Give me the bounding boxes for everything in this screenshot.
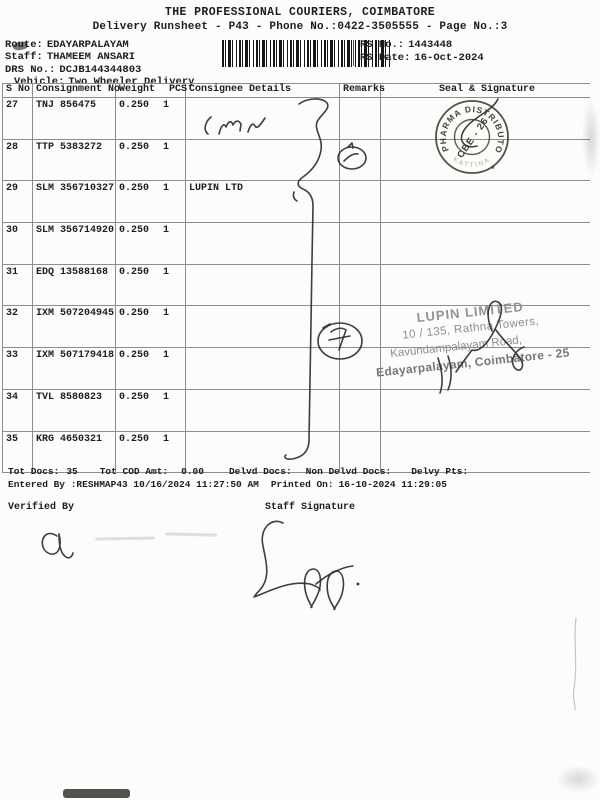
header-consignment: Consignment No bbox=[33, 84, 116, 97]
cell-seal bbox=[381, 390, 590, 431]
entered-by-value: RESHMAP43 10/16/2024 11:27:50 AM bbox=[76, 479, 258, 490]
pcs-value: 1 bbox=[163, 100, 169, 111]
tot-cod-label: Tot COD Amt: bbox=[100, 466, 168, 477]
page-title: THE PROFESSIONAL COURIERS, COIMBATORE bbox=[0, 6, 600, 19]
cell-seal bbox=[381, 223, 590, 264]
cell-sno: 28 bbox=[2, 140, 33, 181]
cell-consignee bbox=[186, 98, 340, 139]
scan-fleck bbox=[165, 532, 217, 536]
drs-line: DRS No.:DCJB144344803 bbox=[5, 64, 141, 76]
totals-row: Tot Docs: 35 Tot COD Amt: 0.00 Delvd Doc… bbox=[8, 466, 468, 477]
header-remarks: Remarks bbox=[340, 84, 381, 97]
table-row: 30SLM 3567149200.2501 bbox=[2, 223, 590, 265]
pcs-value: 1 bbox=[163, 267, 169, 278]
cell-weight-pcs: 0.2501 bbox=[116, 306, 186, 347]
cell-consignment: EDQ 13588168 bbox=[33, 265, 116, 306]
cell-weight-pcs: 0.2501 bbox=[116, 98, 186, 139]
printed-on-value: 16-10-2024 11:29:05 bbox=[339, 479, 447, 490]
weight-value: 0.250 bbox=[119, 308, 149, 319]
page-subtitle: Delivery Runsheet - P43 - Phone No.:0422… bbox=[0, 21, 600, 33]
handwriting-staff-signature bbox=[254, 521, 359, 609]
weight-value: 0.250 bbox=[119, 392, 149, 403]
cell-weight-pcs: 0.2501 bbox=[116, 265, 186, 306]
weight-value: 0.250 bbox=[119, 267, 149, 278]
cell-sno: 27 bbox=[2, 98, 33, 139]
rs-block: RS No.:1443448 RS Date:16-Oct-2024 bbox=[360, 39, 484, 65]
table-row: 28TTP 53832720.2501 bbox=[2, 140, 590, 182]
pcs-value: 1 bbox=[163, 434, 169, 445]
header-weight: Weight bbox=[119, 84, 155, 95]
weight-value: 0.250 bbox=[119, 350, 149, 361]
staff-label: Staff: bbox=[5, 51, 43, 63]
route-value: EDAYARPALAYAM bbox=[47, 39, 129, 51]
rs-date-value: 16-Oct-2024 bbox=[414, 52, 483, 64]
cell-consignee: LUPIN LTD bbox=[186, 181, 340, 222]
weight-value: 0.250 bbox=[119, 142, 149, 153]
table-row: 29SLM 3567103270.2501LUPIN LTD bbox=[2, 181, 590, 223]
cell-remarks bbox=[340, 181, 381, 222]
table-header-row: S No Consignment No WeightPCS Consignee … bbox=[2, 83, 590, 98]
tot-docs-label: Tot Docs: bbox=[8, 466, 59, 477]
cell-weight-pcs: 0.2501 bbox=[116, 390, 186, 431]
cell-remarks bbox=[340, 140, 381, 181]
header-sno: S No bbox=[2, 84, 33, 97]
consignment-table: S No Consignment No WeightPCS Consignee … bbox=[2, 83, 590, 473]
header-seal: Seal & Signature bbox=[381, 84, 590, 97]
table-row: 27TNJ 8564750.2501 bbox=[2, 98, 590, 140]
printed-on-label: Printed On: bbox=[271, 479, 334, 490]
cell-weight-pcs: 0.2501 bbox=[116, 140, 186, 181]
cell-seal bbox=[381, 140, 590, 181]
cell-consignment: TNJ 856475 bbox=[33, 98, 116, 139]
pcs-value: 1 bbox=[163, 225, 169, 236]
edge-smudge bbox=[556, 765, 600, 793]
pcs-value: 1 bbox=[163, 142, 169, 153]
non-delvd-docs-label: Non Delvd Docs: bbox=[306, 466, 392, 477]
cell-sno: 29 bbox=[2, 181, 33, 222]
cell-consignee bbox=[186, 223, 340, 264]
cell-remarks bbox=[340, 223, 381, 264]
cell-sno: 31 bbox=[2, 265, 33, 306]
cell-consignment: SLM 356710327 bbox=[33, 181, 116, 222]
edge-smudge bbox=[582, 98, 600, 178]
cell-consignee bbox=[186, 140, 340, 181]
rs-no-value: 1443448 bbox=[408, 39, 452, 51]
pcs-value: 1 bbox=[163, 350, 169, 361]
rs-divider-line bbox=[353, 40, 354, 66]
weight-value: 0.250 bbox=[119, 183, 149, 194]
delvy-pts-label: Delvy Pts: bbox=[411, 466, 468, 477]
scan-fleck bbox=[95, 536, 155, 540]
weight-value: 0.250 bbox=[119, 434, 149, 445]
drs-label: DRS No.: bbox=[5, 64, 55, 76]
cell-consignment: TTP 5383272 bbox=[33, 140, 116, 181]
cell-weight-pcs: 0.2501 bbox=[116, 348, 186, 389]
cell-seal bbox=[381, 181, 590, 222]
staff-value: THAMEEM ANSARI bbox=[47, 51, 135, 63]
table-row: 34TVL 85808230.2501 bbox=[2, 390, 590, 432]
entered-row: Entered By : RESHMAP43 10/16/2024 11:27:… bbox=[8, 479, 447, 490]
rs-date-label: RS Date: bbox=[360, 52, 410, 64]
header-consignee: Consignee Details bbox=[186, 84, 340, 97]
cell-consignee bbox=[186, 390, 340, 431]
rs-no-label: RS No.: bbox=[360, 39, 404, 51]
cell-consignee bbox=[186, 348, 340, 389]
cell-sno: 34 bbox=[2, 390, 33, 431]
pcs-value: 1 bbox=[163, 183, 169, 194]
cell-weight-pcs: 0.2501 bbox=[116, 223, 186, 264]
runsheet-page: THE PROFESSIONAL COURIERS, COIMBATORE De… bbox=[0, 0, 600, 800]
drs-value: DCJB144344803 bbox=[59, 64, 141, 76]
scan-artifact-bar bbox=[63, 789, 130, 798]
delvd-docs-label: Delvd Docs: bbox=[229, 466, 292, 477]
entered-by-label: Entered By : bbox=[8, 479, 76, 490]
cell-consignee bbox=[186, 306, 340, 347]
cell-consignment: IXM 507179418 bbox=[33, 348, 116, 389]
cell-consignment: SLM 356714920 bbox=[33, 223, 116, 264]
verified-by-label: Verified By bbox=[8, 502, 74, 513]
weight-value: 0.250 bbox=[119, 100, 149, 111]
cell-sno: 33 bbox=[2, 348, 33, 389]
tot-docs-value: 35 bbox=[66, 466, 77, 477]
cell-sno: 32 bbox=[2, 306, 33, 347]
pcs-value: 1 bbox=[163, 392, 169, 403]
cell-sno: 30 bbox=[2, 223, 33, 264]
staff-signature-label: Staff Signature bbox=[265, 502, 355, 513]
header-weight-pcs: WeightPCS bbox=[116, 84, 186, 97]
cell-remarks bbox=[340, 98, 381, 139]
cell-consignee bbox=[186, 265, 340, 306]
cell-weight-pcs: 0.2501 bbox=[116, 181, 186, 222]
table-body: 27TNJ 8564750.250128TTP 53832720.250129S… bbox=[2, 98, 590, 473]
scan-line-artifact bbox=[573, 618, 576, 710]
cell-remarks bbox=[340, 390, 381, 431]
header-pcs: PCS bbox=[169, 84, 187, 95]
cell-consignment: TVL 8580823 bbox=[33, 390, 116, 431]
cell-consignment: IXM 507204945 bbox=[33, 306, 116, 347]
cell-seal bbox=[381, 98, 590, 139]
staff-line: Staff:THAMEEM ANSARI bbox=[5, 51, 135, 63]
tot-cod-value: 0.00 bbox=[181, 466, 204, 477]
cell-remarks bbox=[340, 265, 381, 306]
handwriting-verified-signature bbox=[42, 534, 73, 558]
pcs-value: 1 bbox=[163, 308, 169, 319]
weight-value: 0.250 bbox=[119, 225, 149, 236]
